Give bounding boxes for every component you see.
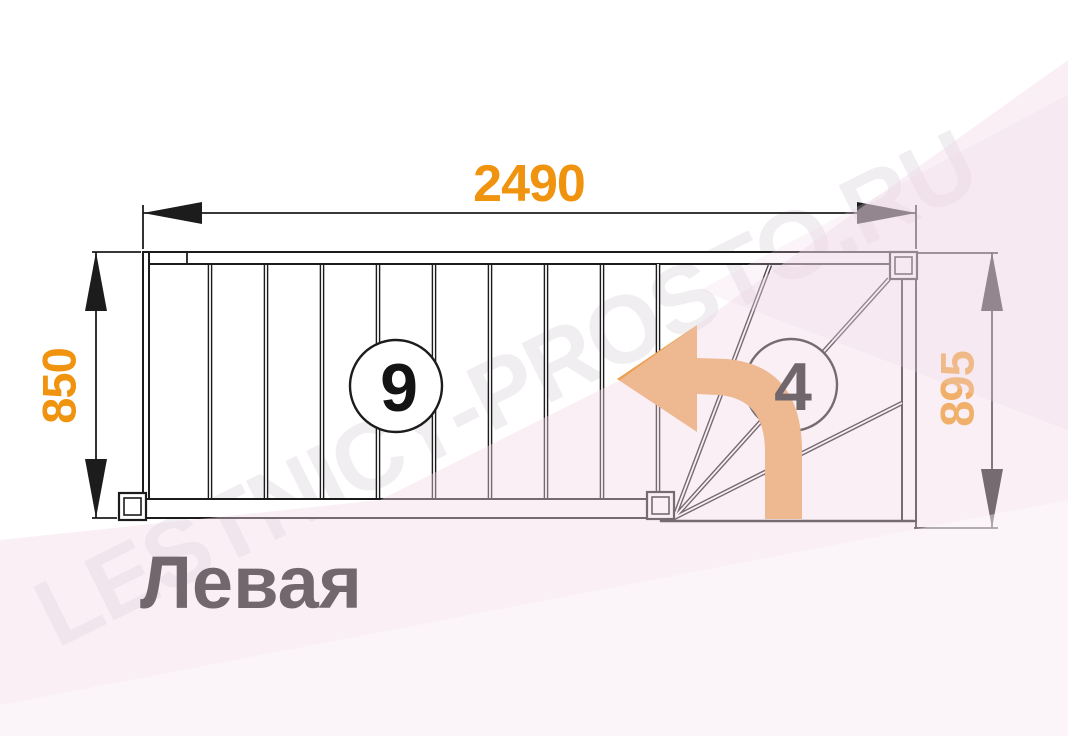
bottom-stringer: [143, 499, 660, 518]
arrowhead-down-icon: [981, 469, 1003, 528]
straight-step-count: 9: [380, 354, 418, 422]
stair-plan-canvas: LESTNICY-PROSTO.RU: [0, 0, 1068, 736]
left-edge: [143, 252, 149, 499]
dimension-label-right: 895: [930, 351, 985, 426]
stair-plan-drawing: LESTNICY-PROSTO.RU: [0, 0, 1068, 736]
arrowhead-up-icon: [981, 252, 1003, 311]
arrowhead-left-icon: [143, 202, 202, 224]
arrowhead-up-icon: [85, 252, 107, 311]
arrowhead-down-icon: [85, 459, 107, 518]
winder-step-count: 4: [774, 353, 812, 421]
right-edge: [902, 278, 916, 521]
dimension-label-left: 850: [32, 348, 87, 423]
dimension-left: [85, 252, 141, 518]
post-bottom-left: [119, 493, 146, 520]
dimension-label-top: 2490: [473, 154, 585, 214]
post-winder-center: [647, 492, 674, 519]
post-top-right: [890, 252, 917, 279]
plan-title: Левая: [140, 540, 362, 625]
top-stringer: [143, 252, 890, 264]
